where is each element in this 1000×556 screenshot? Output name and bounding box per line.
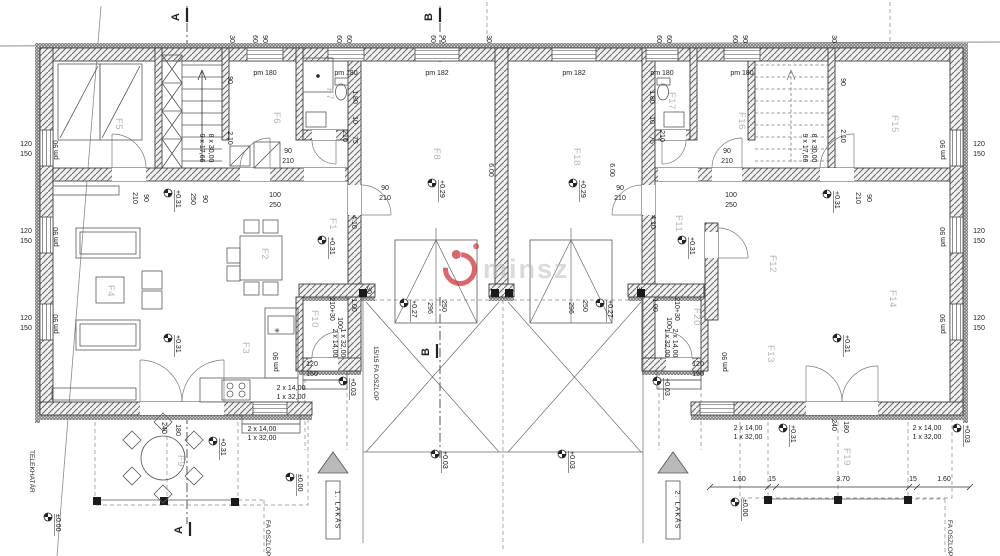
dim-label: pm 180: [253, 70, 276, 77]
level-label: +0.31: [219, 438, 226, 456]
level-label: +0.03: [441, 451, 448, 469]
dim-label: 120: [692, 361, 704, 368]
dim-label: 2.10: [839, 129, 846, 143]
room-label-F9: F9: [175, 455, 186, 467]
dim-label: 296: [567, 302, 574, 314]
dim-label: 4.10: [350, 215, 357, 229]
door-arc: [240, 138, 270, 168]
dim-label: 100: [725, 192, 737, 199]
door-arc: [820, 134, 854, 168]
dim-label: pm 180: [334, 70, 357, 77]
room-label-F11: F11: [673, 215, 684, 232]
door-arc: [182, 360, 224, 402]
dim-label: 2 x 14,00: [734, 425, 763, 432]
dim-label: 1 x 32,00: [663, 329, 670, 358]
dim-label: 1 x 32,00: [339, 329, 346, 358]
dim-label: 180: [842, 421, 849, 433]
dim-label: ✳: [274, 327, 280, 335]
dim-label: 296: [426, 302, 433, 314]
room-label-F4: F4: [105, 285, 116, 297]
entrance-triangle-icon: [658, 452, 688, 473]
level-label: +0.31: [789, 425, 796, 443]
room-label-F20: F20: [691, 308, 702, 326]
room-label-F8: F8: [431, 148, 442, 160]
door-arc: [140, 360, 182, 402]
dim-label: 2 x 14,00: [331, 329, 338, 358]
room-label-F10: F10: [309, 310, 320, 328]
dim-label: 120: [973, 315, 985, 322]
level-label: +0.31: [688, 237, 695, 255]
floor-plan-stage: 30609060606090306060609030pm 180pm 180pm…: [0, 0, 1000, 556]
dim-label: 250: [581, 300, 588, 312]
dim-label: 2 x 14,00: [913, 425, 942, 432]
furniture: [52, 58, 684, 402]
dim-label: 1 x 32,00: [734, 434, 763, 441]
room-label-F5: F5: [113, 118, 124, 130]
dim-label: 60: [429, 35, 436, 43]
chair-icon: [185, 431, 203, 449]
dim-label: 30: [228, 35, 235, 43]
dim-label: 90: [839, 78, 846, 86]
dim-label: 150: [973, 325, 985, 332]
dim-label: 210+30: [673, 297, 680, 321]
dim-label: 1.00: [350, 298, 357, 312]
room-label-F3: F3: [240, 342, 251, 354]
dim-label: pm 90: [53, 314, 60, 334]
note-label: 15/15 FA OSZLOP: [372, 346, 379, 401]
dim-label: 180: [174, 424, 181, 436]
dim-label: pm 180: [730, 70, 753, 77]
dim-label: 120: [20, 315, 32, 322]
note-label: FA OSZLOP: [946, 520, 953, 556]
dim-label: 60: [731, 35, 738, 43]
level-label: ±0.00: [54, 514, 61, 532]
dim-label: 90: [142, 194, 149, 202]
dim-label: 10: [351, 116, 358, 124]
dim-label: 2.10: [226, 131, 233, 145]
section-marker-a: A: [173, 526, 185, 534]
dim-label: 2 x 14,00: [277, 385, 306, 392]
wood-post: [231, 498, 239, 506]
dim-label: 120: [20, 141, 32, 148]
level-label: +0.03: [349, 378, 356, 396]
wood-post: [764, 496, 772, 504]
dim-label: 1.80: [648, 90, 655, 104]
dim-label: 240: [160, 422, 167, 434]
dim-label: 75: [351, 136, 358, 144]
dim-label: 75: [648, 136, 655, 144]
room-label-F6: F6: [271, 112, 282, 124]
level-label: +0.31: [174, 190, 181, 208]
dim-label: 150: [306, 371, 318, 378]
room-label-F15: F15: [889, 115, 900, 133]
dim-label: pm 182: [562, 70, 585, 77]
dim-label: 150: [973, 238, 985, 245]
dim-label: 3.70: [836, 476, 850, 483]
dim-label: 90: [865, 194, 872, 202]
dim-label: 210: [614, 195, 626, 202]
room-label-F16: F16: [736, 112, 747, 130]
wood-post: [904, 496, 912, 504]
level-label: +0.03: [568, 451, 575, 469]
dim-label: 90: [741, 35, 748, 43]
door-arc: [112, 134, 146, 168]
dim-label: 120: [306, 361, 318, 368]
dim-label: 1.60: [732, 476, 746, 483]
level-label: +0.31: [843, 335, 850, 353]
door-arc: [806, 366, 842, 402]
dim-label: 150: [973, 151, 985, 158]
dim-label: 150: [20, 151, 32, 158]
dim-label: 9 x 17,66: [801, 134, 808, 163]
dim-label: 210: [131, 192, 138, 204]
note-label: TELEKHATÁR: [28, 450, 37, 493]
chair-icon: [123, 431, 141, 449]
dim-label: 150: [692, 371, 704, 378]
toilet-icon: [336, 84, 347, 100]
apartment-tag-2: 2. LAKÁS: [674, 490, 683, 529]
dim-label: 10: [648, 116, 655, 124]
dim-label: 100: [665, 317, 672, 329]
dim-label: pm 90: [940, 314, 947, 334]
room-label-F13: F13: [765, 345, 776, 363]
chair-icon: [185, 467, 203, 485]
level-label: +0.31: [174, 335, 181, 353]
dim-label: 250: [725, 202, 737, 209]
dim-label: 100: [336, 317, 343, 329]
dim-label: 90: [226, 76, 233, 84]
room-label-F7: F7: [324, 88, 335, 100]
dim-label: pm 90: [722, 352, 729, 372]
dim-label: 120: [973, 141, 985, 148]
dim-label: 120: [973, 228, 985, 235]
dim-label: 15: [768, 476, 776, 483]
dim-label: 150: [20, 325, 32, 332]
dim-label: 6.00: [487, 163, 494, 177]
dim-label: 120: [20, 228, 32, 235]
level-label: +0.03: [663, 378, 670, 396]
floor-plan-drawing: 30609060606090306060609030pm 180pm 180pm…: [0, 0, 1000, 556]
room-label-F14: F14: [887, 290, 898, 308]
dim-label: 15: [909, 476, 917, 483]
dim-label: 1 x 32,00: [277, 394, 306, 401]
section-markers: ABBA: [170, 8, 440, 536]
room-label-F1: F1: [327, 218, 338, 230]
dim-label: 90: [284, 148, 292, 155]
dim-label: 8 x 30,00: [207, 134, 214, 163]
dim-label: 210: [341, 130, 348, 142]
dim-label: pm 90: [273, 352, 280, 372]
dim-label: pm 90: [53, 140, 60, 160]
dim-label: 30: [635, 286, 642, 294]
dim-label: 90: [616, 185, 624, 192]
dim-label: 90: [261, 35, 268, 43]
dim-label: 60: [251, 35, 258, 43]
wood-post: [834, 496, 842, 504]
dim-label: 1.00: [651, 298, 658, 312]
dim-label: 1.80: [351, 90, 358, 104]
door-arc: [662, 140, 686, 164]
dim-label: 60: [345, 35, 352, 43]
level-label: +0.29: [438, 180, 445, 198]
dim-label: 30: [830, 35, 837, 43]
dim-label: 1 x 32,00: [913, 434, 942, 441]
dim-label: 100: [269, 192, 281, 199]
wood-post: [93, 497, 101, 505]
level-label: +0.31: [328, 237, 335, 255]
dim-label: 4.10: [649, 215, 656, 229]
level-label: ±0.00: [741, 499, 748, 517]
level-label: +0.27: [606, 300, 613, 318]
door-arc: [312, 140, 336, 164]
level-label: +0.29: [579, 180, 586, 198]
dim-label: 250: [269, 202, 281, 209]
room-label-F2: F2: [259, 248, 270, 260]
dim-label: pm 180: [650, 70, 673, 77]
dim-label: 60: [335, 35, 342, 43]
dim-label: 90: [381, 185, 389, 192]
room-label-F19: F19: [841, 448, 852, 466]
dim-label: 2 x 14,00: [248, 426, 277, 433]
dim-label: 2 x 14,00: [671, 329, 678, 358]
dim-label: 240: [830, 419, 837, 431]
dim-label: 210+30: [328, 297, 335, 321]
dim-label: 210: [282, 158, 294, 165]
dim-label: pm 90: [53, 227, 60, 247]
dim-label: 30: [485, 35, 492, 43]
dim-label: 90: [439, 35, 446, 43]
dim-label: 1 x 32,00: [248, 435, 277, 442]
section-marker-b: B: [423, 13, 435, 21]
dim-label: 210: [854, 192, 861, 204]
dim-label: 150: [20, 238, 32, 245]
dim-label: 1.60: [937, 476, 951, 483]
dim-label: 60: [655, 35, 662, 43]
dim-label: 30: [365, 286, 372, 294]
dim-label: 9 x 17,66: [198, 134, 205, 163]
dim-label: 90: [723, 148, 731, 155]
note-label: FA OSZLOP: [264, 520, 271, 556]
door-arc: [718, 228, 748, 258]
dim-label: 210: [379, 195, 391, 202]
chair-icon: [123, 467, 141, 485]
section-marker-a: A: [170, 13, 182, 21]
dim-label: 210: [658, 130, 665, 142]
section-marker-b: B: [420, 348, 432, 356]
apartment-tag-1: 1. LAKÁS: [334, 490, 343, 529]
dim-label: pm 90: [940, 140, 947, 160]
dim-label: 250: [440, 300, 447, 312]
entrance-triangle-icon: [318, 452, 348, 473]
walls: [40, 48, 963, 415]
room-label-F17: F17: [666, 92, 677, 110]
level-label: +0.31: [833, 191, 840, 209]
room-label-F12: F12: [767, 255, 778, 273]
dim-label: 6.00: [608, 163, 615, 177]
dim-label: 90: [201, 195, 208, 203]
dim-label: 250: [189, 193, 196, 205]
room-label-F18: F18: [571, 148, 582, 166]
dim-label: pm 90: [940, 227, 947, 247]
level-label: +0.27: [410, 300, 417, 318]
dim-label: 8 x 30,00: [810, 134, 817, 163]
dim-label: 60: [665, 35, 672, 43]
level-label: ±0.00: [296, 474, 303, 492]
door-arc: [842, 366, 878, 402]
dim-label: pm 182: [425, 70, 448, 77]
dim-label: 210: [721, 158, 733, 165]
level-label: +0.03: [963, 425, 970, 443]
